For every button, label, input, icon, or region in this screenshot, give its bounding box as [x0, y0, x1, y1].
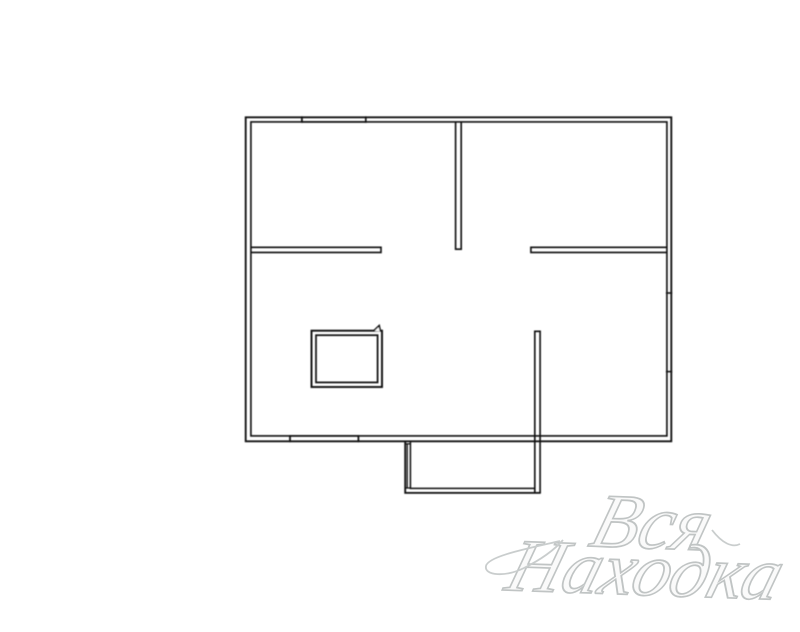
svg-text:Находка: Находка: [497, 525, 793, 616]
